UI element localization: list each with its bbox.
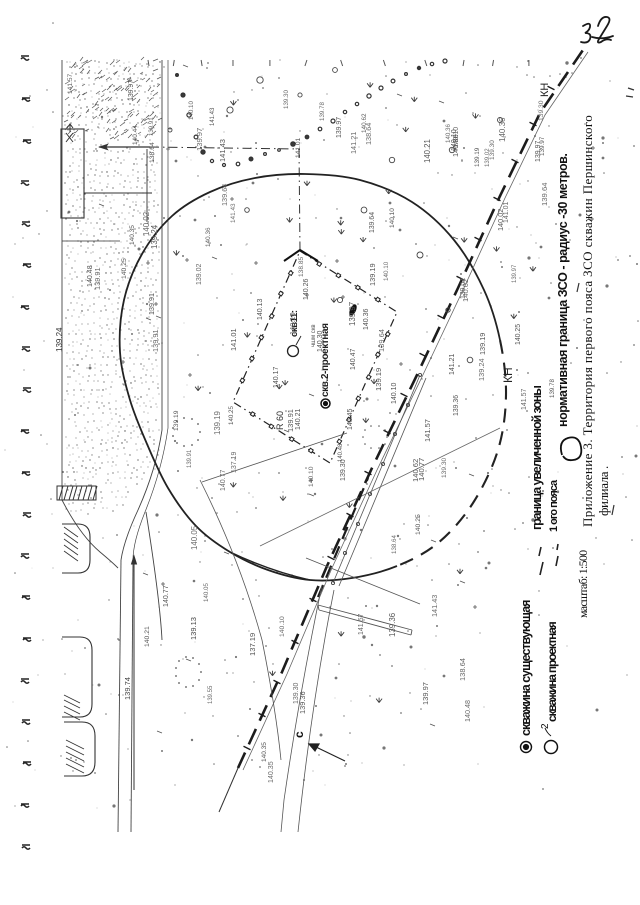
svg-text:140.36: 140.36 [363, 308, 370, 330]
svg-text:139.91: 139.91 [148, 117, 155, 136]
svg-text:140.10: 140.10 [188, 101, 195, 120]
svg-text:скважина существующая: скважина существующая [519, 600, 533, 736]
svg-text:139.91: 139.91 [286, 409, 295, 432]
svg-text:139.36: 139.36 [298, 691, 307, 714]
svg-text:138.64: 138.64 [149, 142, 156, 163]
svg-text:139.19: 139.19 [368, 263, 377, 286]
svg-text:139.97: 139.97 [421, 682, 430, 705]
svg-text:Приложение 3. Территория перво: Приложение 3. Территория первого пояса З… [580, 115, 595, 527]
svg-text:140.21: 140.21 [423, 139, 432, 163]
svg-text:140.36: 140.36 [498, 117, 507, 142]
svg-text:141.43: 141.43 [218, 139, 227, 162]
svg-text:140.13: 140.13 [257, 298, 264, 320]
svg-text:140.02: 140.02 [496, 209, 505, 231]
svg-text:139.02: 139.02 [196, 263, 203, 285]
svg-text:138.64: 138.64 [391, 535, 398, 554]
svg-text:139.13: 139.13 [189, 617, 198, 640]
svg-text:141.01: 141.01 [295, 137, 302, 158]
svg-text:139.64: 139.64 [540, 182, 549, 206]
svg-text:139.36: 139.36 [453, 395, 460, 416]
svg-text:139.30: 139.30 [441, 457, 448, 478]
svg-text:140.77: 140.77 [162, 585, 170, 607]
svg-text:139.55: 139.55 [208, 685, 214, 704]
svg-text:137.19: 137.19 [231, 451, 238, 473]
svg-text:141.43: 141.43 [430, 595, 439, 617]
svg-text:140.35: 140.35 [267, 761, 275, 783]
svg-text:140.47: 140.47 [350, 348, 357, 370]
svg-text:139.19: 139.19 [374, 368, 383, 391]
svg-text:140.25: 140.25 [515, 324, 522, 345]
svg-text:139.97: 139.97 [336, 117, 343, 138]
svg-text:140.21: 140.21 [144, 626, 151, 647]
svg-text:140.44: 140.44 [132, 125, 139, 145]
svg-text:138.85: 138.85 [298, 256, 305, 277]
svg-text:140.10: 140.10 [389, 208, 396, 228]
svg-text:140.05: 140.05 [190, 525, 199, 550]
svg-text:140.48: 140.48 [86, 265, 94, 287]
svg-text:140.36: 140.36 [451, 134, 460, 157]
svg-text:140.35: 140.35 [261, 742, 268, 762]
svg-text:139.64: 139.64 [369, 212, 376, 233]
svg-text:139.97: 139.97 [512, 264, 518, 283]
svg-text:139.97: 139.97 [539, 136, 546, 156]
svg-text:140.77: 140.77 [220, 469, 227, 491]
svg-text:КН: КН [539, 83, 551, 97]
svg-text:139.19: 139.19 [474, 147, 481, 167]
svg-text:141.57: 141.57 [423, 419, 432, 442]
svg-text:139.24: 139.24 [55, 327, 64, 352]
svg-text:140.36: 140.36 [205, 227, 212, 247]
svg-text:140.30: 140.30 [317, 330, 324, 352]
svg-text:скважина проектная: скважина проектная [545, 621, 559, 722]
svg-text:141.21: 141.21 [349, 132, 358, 154]
svg-text:141.43: 141.43 [210, 107, 216, 126]
svg-text:139.19: 139.19 [213, 411, 222, 435]
svg-text:141.57: 141.57 [358, 613, 365, 635]
svg-text:141.21: 141.21 [449, 353, 456, 375]
svg-text:140.45: 140.45 [347, 408, 354, 430]
svg-text:141.57: 141.57 [521, 388, 528, 410]
svg-text:139.78: 139.78 [319, 102, 326, 121]
svg-text:139.78: 139.78 [549, 379, 556, 398]
svg-text:139.97: 139.97 [348, 302, 357, 326]
svg-text:140.05: 140.05 [203, 583, 210, 602]
svg-text:139.24: 139.24 [477, 358, 486, 381]
svg-text:139.36: 139.36 [388, 612, 397, 637]
svg-text:140.10: 140.10 [383, 261, 390, 281]
svg-text:141.57: 141.57 [67, 73, 74, 94]
svg-text:140.25: 140.25 [121, 258, 128, 279]
svg-text:139.91: 139.91 [93, 267, 102, 290]
svg-text:139.30: 139.30 [538, 100, 545, 121]
svg-text:137.19: 137.19 [248, 633, 257, 656]
svg-text:R 60: R 60 [275, 411, 285, 430]
svg-text:140.10: 140.10 [288, 312, 297, 335]
svg-text:139.91: 139.91 [187, 449, 193, 468]
svg-text:1 ого пояса: 1 ого пояса [548, 479, 560, 532]
svg-text:139.64: 139.64 [220, 184, 229, 206]
svg-text:141.43: 141.43 [230, 203, 237, 223]
svg-text:масштаб: 1:500: масштаб: 1:500 [576, 550, 590, 618]
svg-text:140.21: 140.21 [295, 408, 302, 430]
svg-text:140.10: 140.10 [308, 466, 315, 487]
svg-text:140.10: 140.10 [391, 382, 398, 404]
svg-text:139.97: 139.97 [195, 128, 204, 151]
svg-text:140.62: 140.62 [361, 113, 368, 133]
svg-text:141.01: 141.01 [229, 328, 238, 351]
svg-text:филиала .: филиала . [596, 466, 611, 516]
svg-text:нормативная граница ЗСО - ради: нормативная граница ЗСО - радиус -30 мет… [556, 154, 570, 427]
svg-text:140.48: 140.48 [338, 443, 344, 462]
svg-text:140.10: 140.10 [279, 616, 286, 637]
svg-text:КН: КН [501, 367, 515, 383]
svg-text:139.91: 139.91 [151, 329, 160, 352]
svg-text:139.64: 139.64 [377, 329, 386, 352]
svg-text:140.02: 140.02 [461, 279, 470, 302]
svg-text:140.25: 140.25 [415, 514, 422, 535]
svg-text:140.35: 140.35 [129, 225, 136, 245]
svg-text:140.25: 140.25 [228, 406, 235, 425]
svg-text:139.19: 139.19 [478, 333, 487, 355]
svg-text:140.26: 140.26 [303, 278, 310, 300]
svg-text:139.30: 139.30 [283, 90, 290, 109]
svg-text:граница увеличенной зоны: граница увеличенной зоны [530, 386, 544, 530]
svg-text:140.48: 140.48 [463, 700, 472, 722]
svg-text:139.02: 139.02 [484, 148, 491, 167]
svg-text:139.24: 139.24 [150, 224, 159, 249]
svg-text:139.97: 139.97 [128, 80, 135, 101]
svg-text:с: с [292, 731, 306, 738]
svg-text:139.74: 139.74 [123, 677, 132, 700]
svg-text:138.64: 138.64 [458, 658, 467, 681]
svg-text:140.62: 140.62 [411, 459, 420, 482]
